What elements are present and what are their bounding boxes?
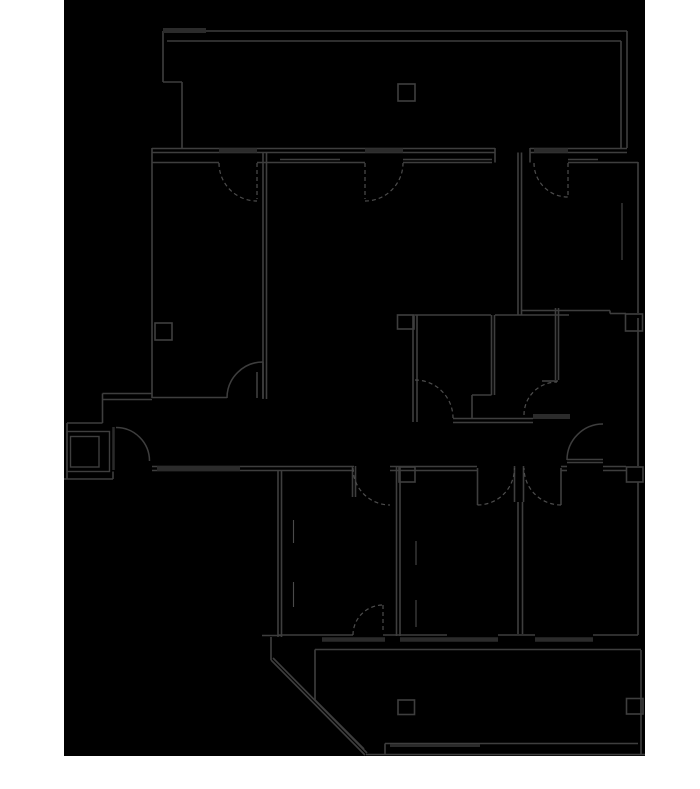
floor-plan-page — [0, 0, 700, 789]
floor-plan-svg — [0, 0, 700, 789]
